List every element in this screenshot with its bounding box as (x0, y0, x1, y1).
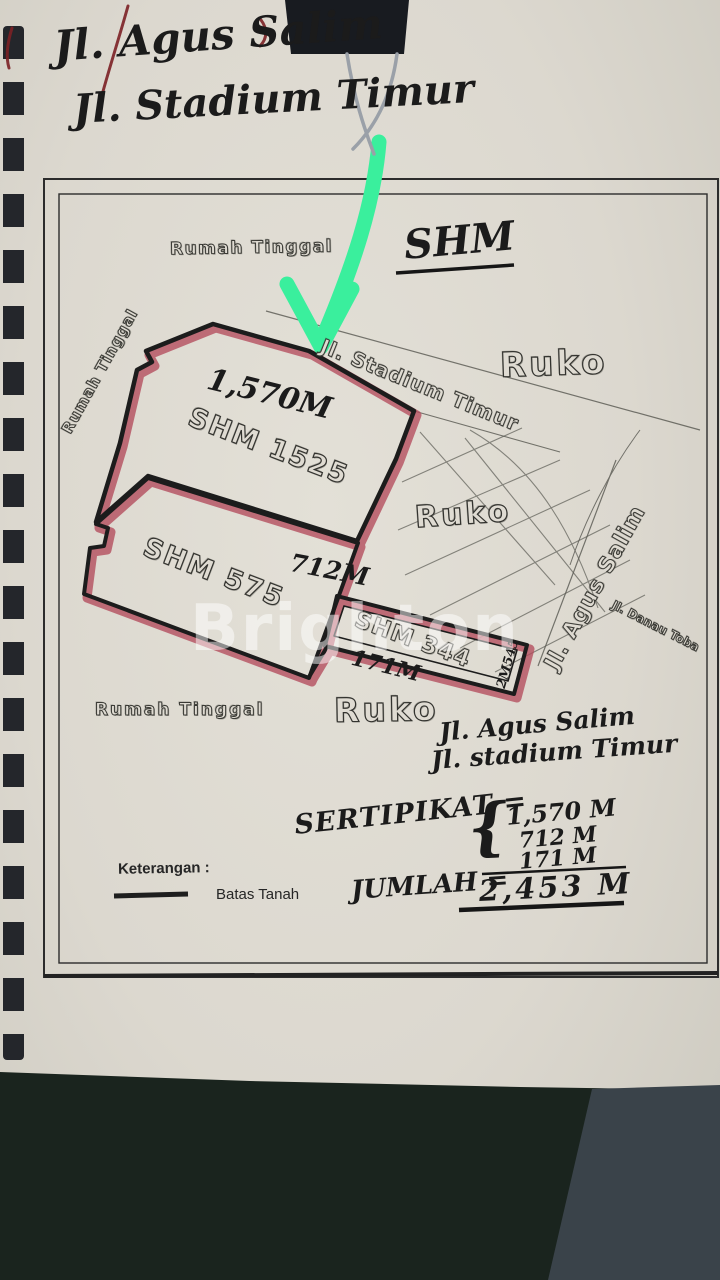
label-ruko-bottom: Ruko (334, 689, 439, 730)
label-ruko-top: Ruko (499, 342, 608, 386)
label-rumah-tinggal-bottom: Rumah Tinggal (95, 700, 265, 720)
legend-heading: Keterangan : (118, 859, 210, 878)
legend-batas-tanah: Batas Tanah (216, 886, 299, 903)
background-fabric (0, 1072, 720, 1280)
certificate-brace: { (466, 795, 510, 860)
plan-frame (44, 179, 718, 977)
brighton-watermark: Brighton (190, 592, 520, 666)
legend-boundary-line (114, 894, 188, 896)
label-ruko-mid: Ruko (414, 494, 512, 536)
shm-heading: SHM (402, 212, 517, 268)
label-rumah-tinggal-top: Rumah Tinggal (170, 237, 333, 260)
